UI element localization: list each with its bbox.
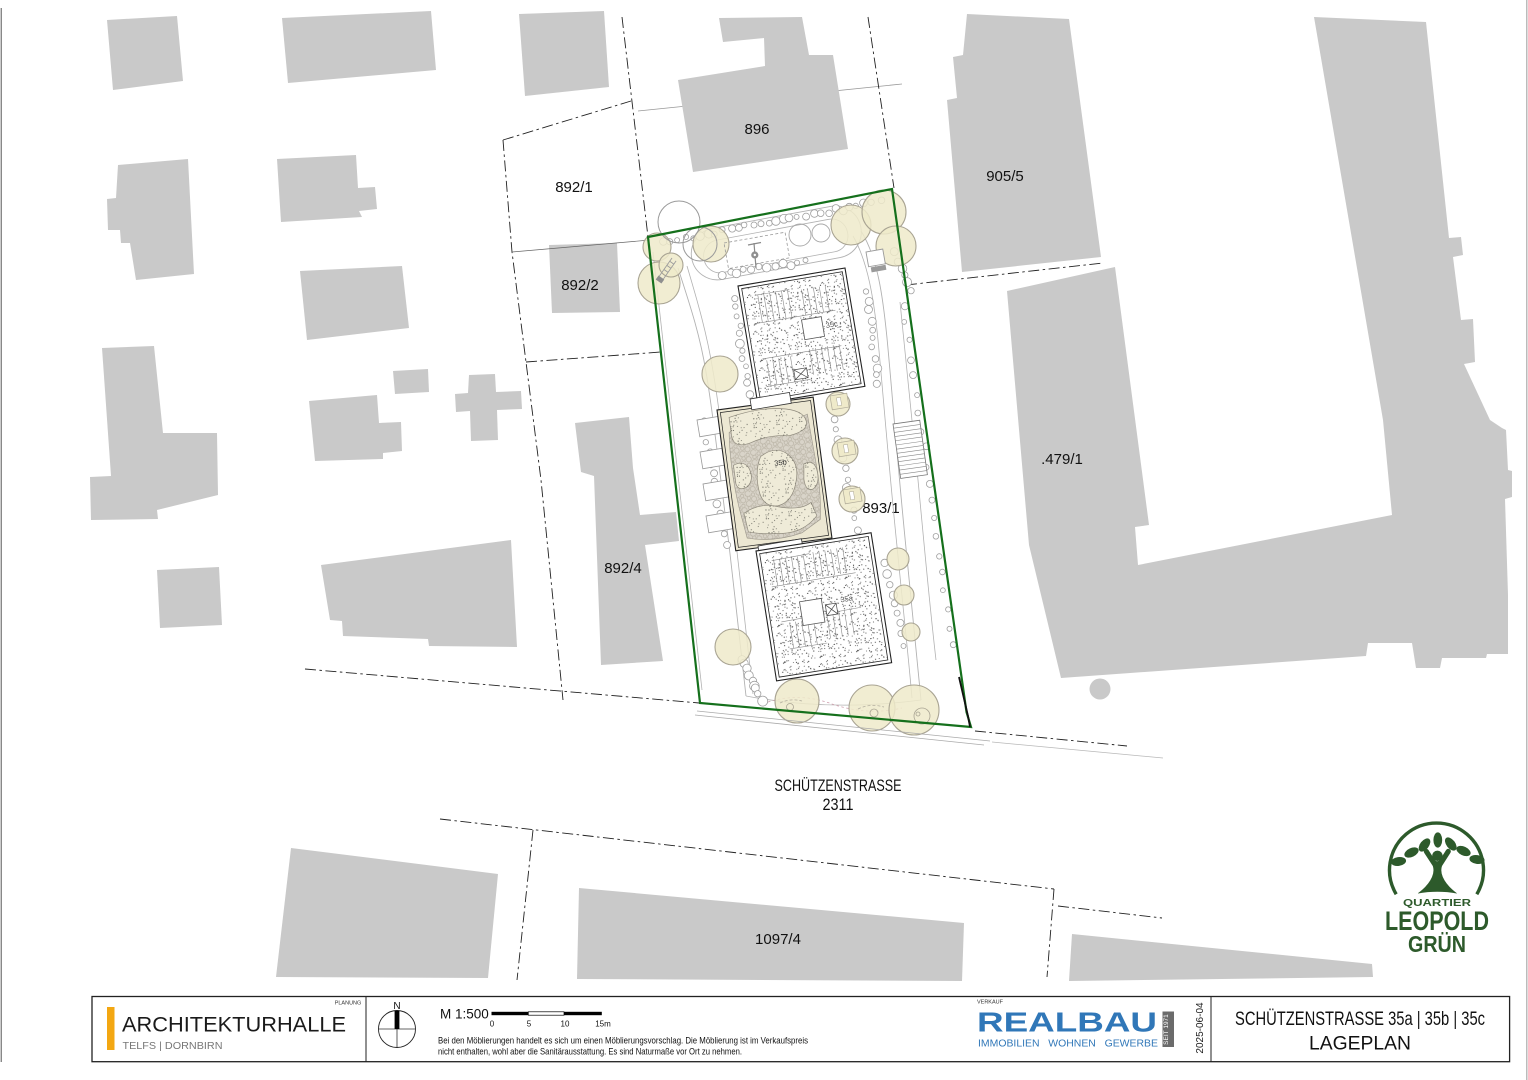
svg-text:LAGEPLAN: LAGEPLAN	[1309, 1033, 1411, 1055]
svg-text:896: 896	[744, 121, 769, 138]
svg-text:905/5: 905/5	[986, 168, 1024, 185]
svg-text:REALBAU: REALBAU	[977, 1007, 1157, 1038]
svg-text:892/1: 892/1	[555, 179, 593, 196]
svg-text:Bei den Möblierungen handelt e: Bei den Möblierungen handelt es sich um …	[438, 1036, 808, 1047]
svg-text:2025-06-04: 2025-06-04	[1195, 1002, 1206, 1054]
svg-text:SEIT 1971: SEIT 1971	[1163, 1014, 1170, 1045]
svg-text:M 1:500: M 1:500	[440, 1007, 489, 1022]
svg-text:SCHÜTZENSTRASSE 35a | 35b | 35: SCHÜTZENSTRASSE 35a | 35b | 35c	[1235, 1008, 1485, 1030]
svg-text:N: N	[393, 1001, 400, 1012]
svg-text:1097/4: 1097/4	[755, 931, 801, 948]
svg-text:GRÜN: GRÜN	[1408, 931, 1466, 957]
svg-text:5: 5	[527, 1020, 532, 1029]
svg-text:0: 0	[490, 1020, 495, 1029]
svg-text:892/4: 892/4	[604, 560, 642, 577]
svg-text:IMMOBILIEN WOHNEN GEWERBE: IMMOBILIEN WOHNEN GEWERBE	[978, 1039, 1158, 1050]
svg-text:.479/1: .479/1	[1041, 451, 1083, 468]
svg-text:892/2: 892/2	[561, 277, 599, 294]
svg-text:nicht enthalten, wohl aber die: nicht enthalten, wohl aber die Sanitärau…	[438, 1047, 742, 1058]
svg-text:15m: 15m	[595, 1020, 611, 1029]
svg-text:35b: 35b	[774, 457, 788, 468]
svg-text:TELFS | DORNBIRN: TELFS | DORNBIRN	[123, 1040, 223, 1052]
svg-text:SCHÜTZENSTRASSE: SCHÜTZENSTRASSE	[775, 776, 902, 795]
svg-text:PLANUNG: PLANUNG	[335, 1001, 362, 1007]
svg-text:VERKAUF: VERKAUF	[977, 1000, 1004, 1006]
svg-text:ARCHITEKTURHALLE: ARCHITEKTURHALLE	[122, 1014, 346, 1037]
svg-text:10: 10	[561, 1020, 570, 1029]
svg-text:2311: 2311	[823, 795, 854, 814]
